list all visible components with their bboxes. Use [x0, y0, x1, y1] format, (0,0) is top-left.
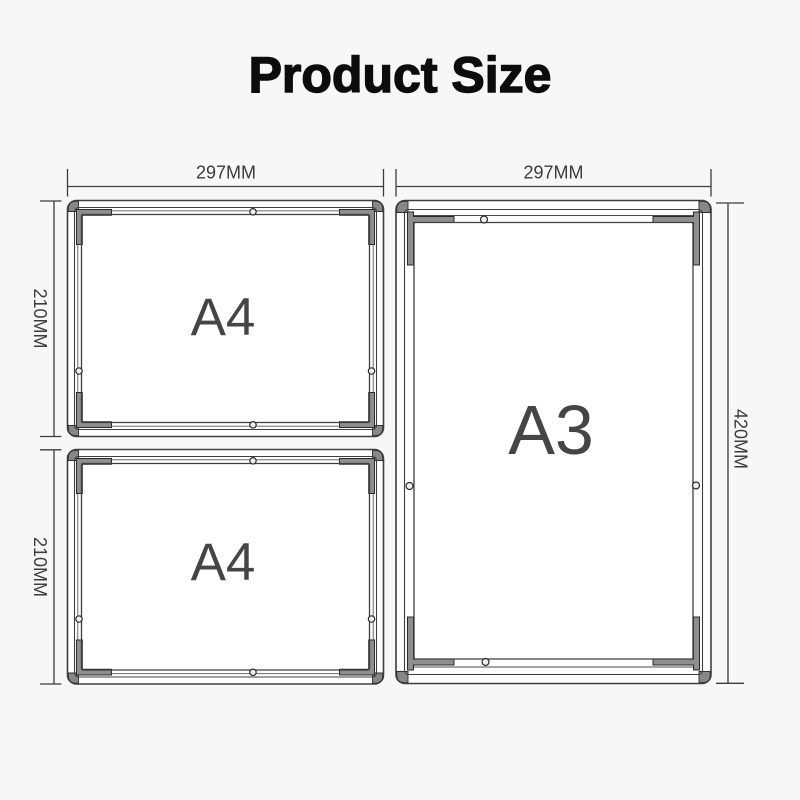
svg-text:A4: A4: [191, 288, 256, 347]
svg-text:297MM: 297MM: [196, 163, 256, 183]
svg-text:A3: A3: [508, 391, 594, 469]
svg-text:A4: A4: [191, 533, 256, 592]
svg-text:420MM: 420MM: [731, 409, 751, 469]
svg-text:210MM: 210MM: [30, 288, 50, 348]
svg-text:297MM: 297MM: [523, 163, 583, 183]
svg-text:Product Size: Product Size: [249, 47, 552, 103]
svg-text:210MM: 210MM: [30, 537, 50, 597]
